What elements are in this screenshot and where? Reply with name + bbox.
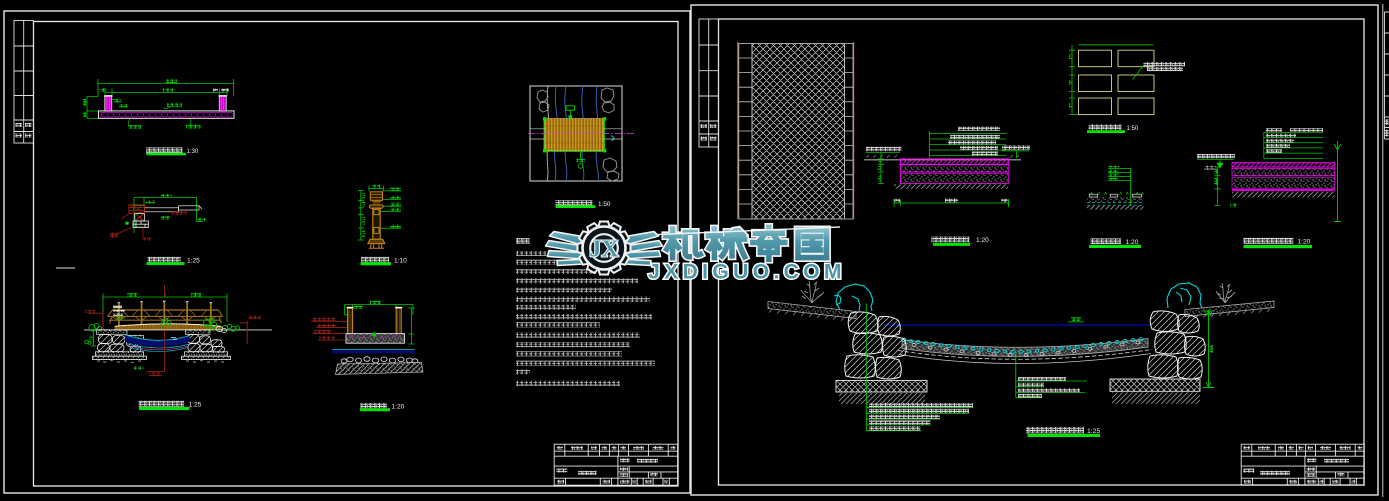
svg-text:1:20: 1:20 [976,237,989,244]
svg-text:1:30: 1:30 [187,149,199,155]
svg-text:JXDIGUO.COM: JXDIGUO.COM [648,261,846,284]
svg-text:1:20: 1:20 [1126,239,1139,246]
svg-text:JX: JX [589,237,619,263]
svg-text:1:25: 1:25 [187,257,200,264]
svg-text:1:50: 1:50 [598,201,611,208]
svg-text:1:20: 1:20 [392,403,405,410]
svg-text:1:25: 1:25 [189,401,202,408]
svg-text:1:50: 1:50 [1127,126,1139,132]
svg-text:1:10: 1:10 [394,257,407,264]
svg-text:1:20: 1:20 [1298,239,1311,246]
